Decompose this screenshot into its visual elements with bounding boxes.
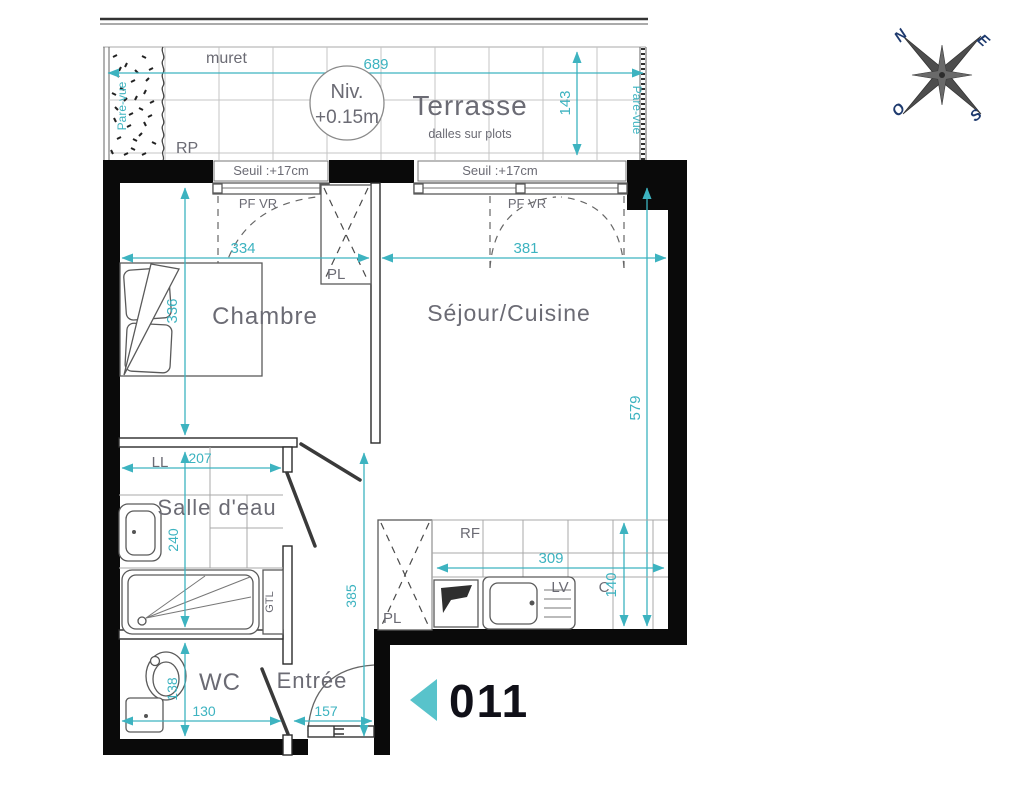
pare-vue-strip: Pare-vue xyxy=(630,47,646,160)
pare-vue-left-label: Pare-vue xyxy=(115,81,129,130)
chambre-door-leaf xyxy=(301,444,360,480)
wc-depth-dim: 138 xyxy=(164,677,180,701)
chambre-room: PL Chambre 334 336 xyxy=(120,185,371,435)
unit-marker: 011 xyxy=(410,675,529,727)
terrace-sub-label: dalles sur plots xyxy=(428,127,511,141)
closet-chambre-label: PL xyxy=(327,266,345,283)
sejour-depth-dim: 579 xyxy=(627,395,644,420)
unit-number: 011 xyxy=(449,675,529,727)
muret-label: muret xyxy=(206,50,247,67)
room-label-wc: WC xyxy=(199,669,241,696)
rp-label: RP xyxy=(176,140,198,157)
pf-vr-right-label: PF VR xyxy=(508,196,546,211)
hand-basin xyxy=(126,698,163,732)
level-line1: Niv. xyxy=(331,81,364,103)
kitchen-area: PL RF xyxy=(378,520,668,630)
seuil-left-label: Seuil :+17cm xyxy=(233,163,309,178)
floor-plan-svg: Pare-vue Pare-vue 689 143 Niv. +0.15m Te… xyxy=(0,0,1014,800)
sejour-width-dim: 381 xyxy=(513,240,538,257)
cooktop xyxy=(434,580,478,627)
kitchen-width-dim: 309 xyxy=(538,550,563,567)
salle-deau-door-leaf xyxy=(287,473,315,546)
room-label-entree: Entrée xyxy=(277,668,348,693)
room-label-chambre: Chambre xyxy=(212,303,318,330)
bathroom-sink xyxy=(119,504,161,561)
dishwasher-label: LV xyxy=(551,579,568,596)
seuil-right-label: Seuil :+17cm xyxy=(462,163,538,178)
shower xyxy=(122,570,259,634)
terrace-depth-dim: 143 xyxy=(557,90,574,115)
closet-cuisine-label: PL xyxy=(383,610,401,627)
muret-wall xyxy=(100,19,648,24)
hall-depth-dim: 385 xyxy=(343,584,359,608)
compass-center xyxy=(939,72,945,78)
level-marker: Niv. +0.15m xyxy=(310,66,384,140)
closet-chambre: PL xyxy=(321,185,371,284)
pf-vr-left-label: PF VR xyxy=(239,196,277,211)
compass-rose: N E S O xyxy=(888,25,993,125)
level-line2: +0.15m xyxy=(315,107,379,128)
chambre-width-dim: 334 xyxy=(230,240,255,257)
chambre-depth-dim: 336 xyxy=(164,298,181,323)
compass-o: O xyxy=(888,100,909,120)
closet-cuisine: PL xyxy=(378,520,432,630)
gtl-label: GTL xyxy=(264,591,276,612)
fridge-label: RF xyxy=(460,525,480,542)
entree-width-dim: 157 xyxy=(314,703,338,719)
compass-s: S xyxy=(967,106,986,125)
room-label-sejour: Séjour/Cuisine xyxy=(427,300,591,326)
unit-arrow-icon xyxy=(410,679,437,721)
planted-strip: Pare-vue xyxy=(111,47,164,160)
wc-width-dim: 130 xyxy=(192,703,216,719)
terrace-area: Pare-vue Pare-vue 689 143 Niv. +0.15m Te… xyxy=(100,19,648,160)
floor-plan-canvas: Pare-vue Pare-vue 689 143 Niv. +0.15m Te… xyxy=(0,0,1014,800)
salle-deau-width-dim: 207 xyxy=(188,450,212,466)
wc-room: WC 138 130 xyxy=(122,643,281,736)
salle-deau-room: LL GTL Salle d'eau 207 240 xyxy=(119,447,283,634)
compass-e: E xyxy=(974,31,994,51)
gtl-duct: GTL xyxy=(263,570,283,634)
terrace-label: Terrasse xyxy=(412,90,527,121)
terrace-width-dim: 689 xyxy=(363,56,388,73)
kitchen-depth-dim: 140 xyxy=(603,572,620,597)
pare-vue-right-label: Pare-vue xyxy=(630,86,644,135)
room-label-salle-deau: Salle d'eau xyxy=(157,495,276,520)
salle-deau-depth-dim: 240 xyxy=(165,528,181,552)
